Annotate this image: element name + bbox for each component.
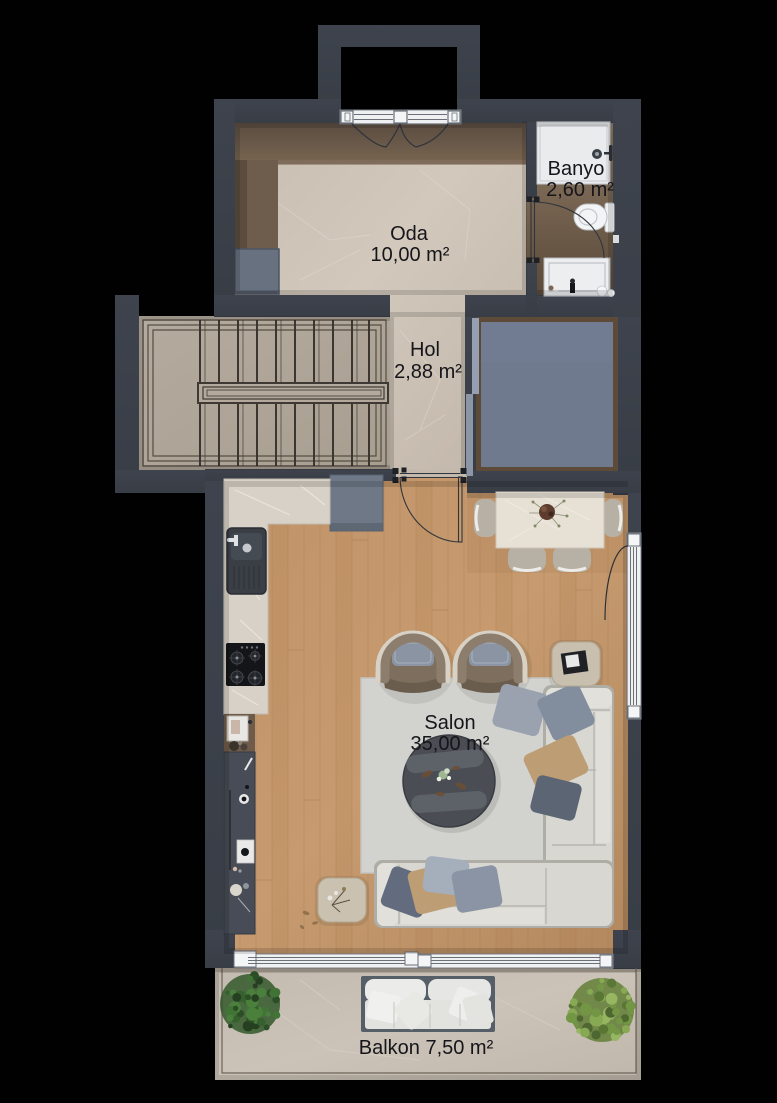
svg-text:Salon: Salon bbox=[424, 712, 475, 734]
svg-text:Oda: Oda bbox=[390, 223, 429, 245]
svg-text:Banyo: Banyo bbox=[548, 158, 605, 180]
svg-text:2,88 m²: 2,88 m² bbox=[394, 361, 462, 383]
svg-text:10,00 m²: 10,00 m² bbox=[371, 244, 450, 266]
svg-text:2,60 m²: 2,60 m² bbox=[546, 179, 614, 201]
svg-text:35,00 m²: 35,00 m² bbox=[411, 733, 490, 755]
svg-text:Balkon 7,50 m²: Balkon 7,50 m² bbox=[359, 1037, 494, 1059]
svg-text:Hol: Hol bbox=[410, 339, 440, 361]
